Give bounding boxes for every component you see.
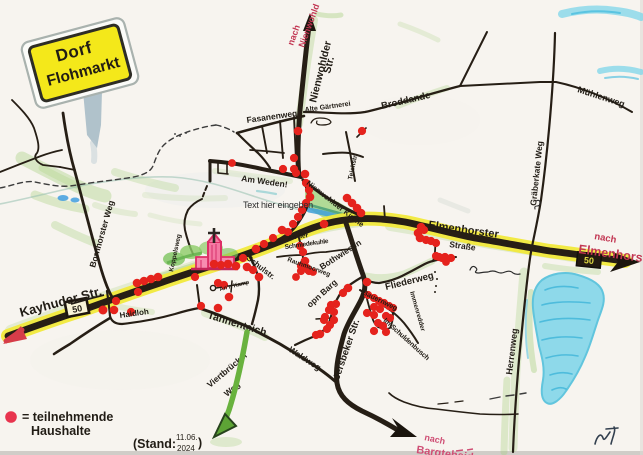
svg-text:): ) <box>198 436 202 450</box>
svg-text:11.06.: 11.06. <box>176 433 198 442</box>
svg-text:= teilnehmende: = teilnehmende <box>22 410 113 424</box>
svg-text:(Stand:: (Stand: <box>133 437 176 451</box>
svg-text:2024: 2024 <box>177 444 195 453</box>
svg-text:Haushalte: Haushalte <box>31 424 91 438</box>
svg-text:Text hier eingeben: Text hier eingeben <box>243 200 313 210</box>
